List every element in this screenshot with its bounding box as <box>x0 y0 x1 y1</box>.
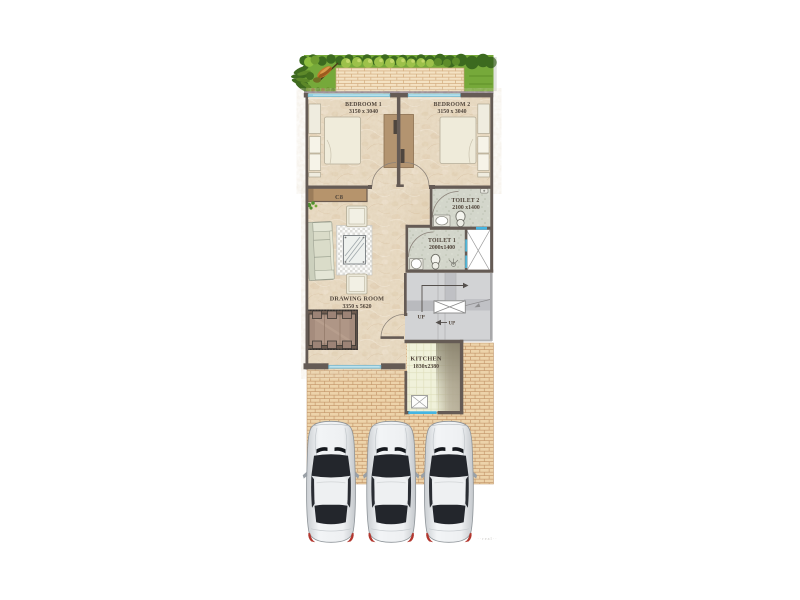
svg-text:BEDROOM 1: BEDROOM 1 <box>345 102 382 108</box>
svg-text:3150 x 3040: 3150 x 3040 <box>438 109 467 115</box>
svg-text:BEDROOM 2: BEDROOM 2 <box>434 102 471 108</box>
svg-text:UP: UP <box>418 315 426 321</box>
svg-text:C8: C8 <box>335 194 344 201</box>
svg-text:DRAWING ROOM: DRAWING ROOM <box>330 296 384 303</box>
svg-text:TOILET 2: TOILET 2 <box>452 198 480 204</box>
svg-text:· · r e a l · ·: · · r e a l · · <box>477 536 496 541</box>
svg-text:3150 x 3040: 3150 x 3040 <box>349 109 378 115</box>
svg-text:1830x2380: 1830x2380 <box>413 364 439 370</box>
svg-text:2100 x1400: 2100 x1400 <box>452 205 480 211</box>
svg-text:UP: UP <box>449 322 456 327</box>
svg-text:3350 x 5620: 3350 x 5620 <box>343 304 372 310</box>
svg-text:KITCHEN: KITCHEN <box>410 356 441 363</box>
svg-text:TOILET 1: TOILET 1 <box>428 238 456 244</box>
svg-text:2000x1400: 2000x1400 <box>429 245 455 251</box>
